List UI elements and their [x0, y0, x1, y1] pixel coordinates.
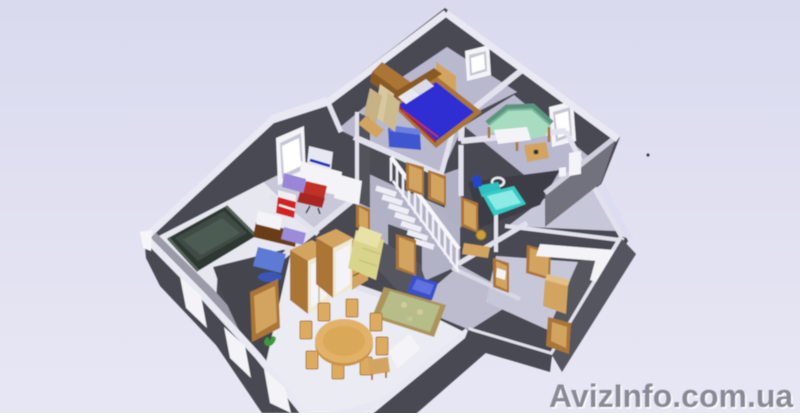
svg-text:AvizInfo.com.ua: AvizInfo.com.ua [549, 378, 793, 413]
